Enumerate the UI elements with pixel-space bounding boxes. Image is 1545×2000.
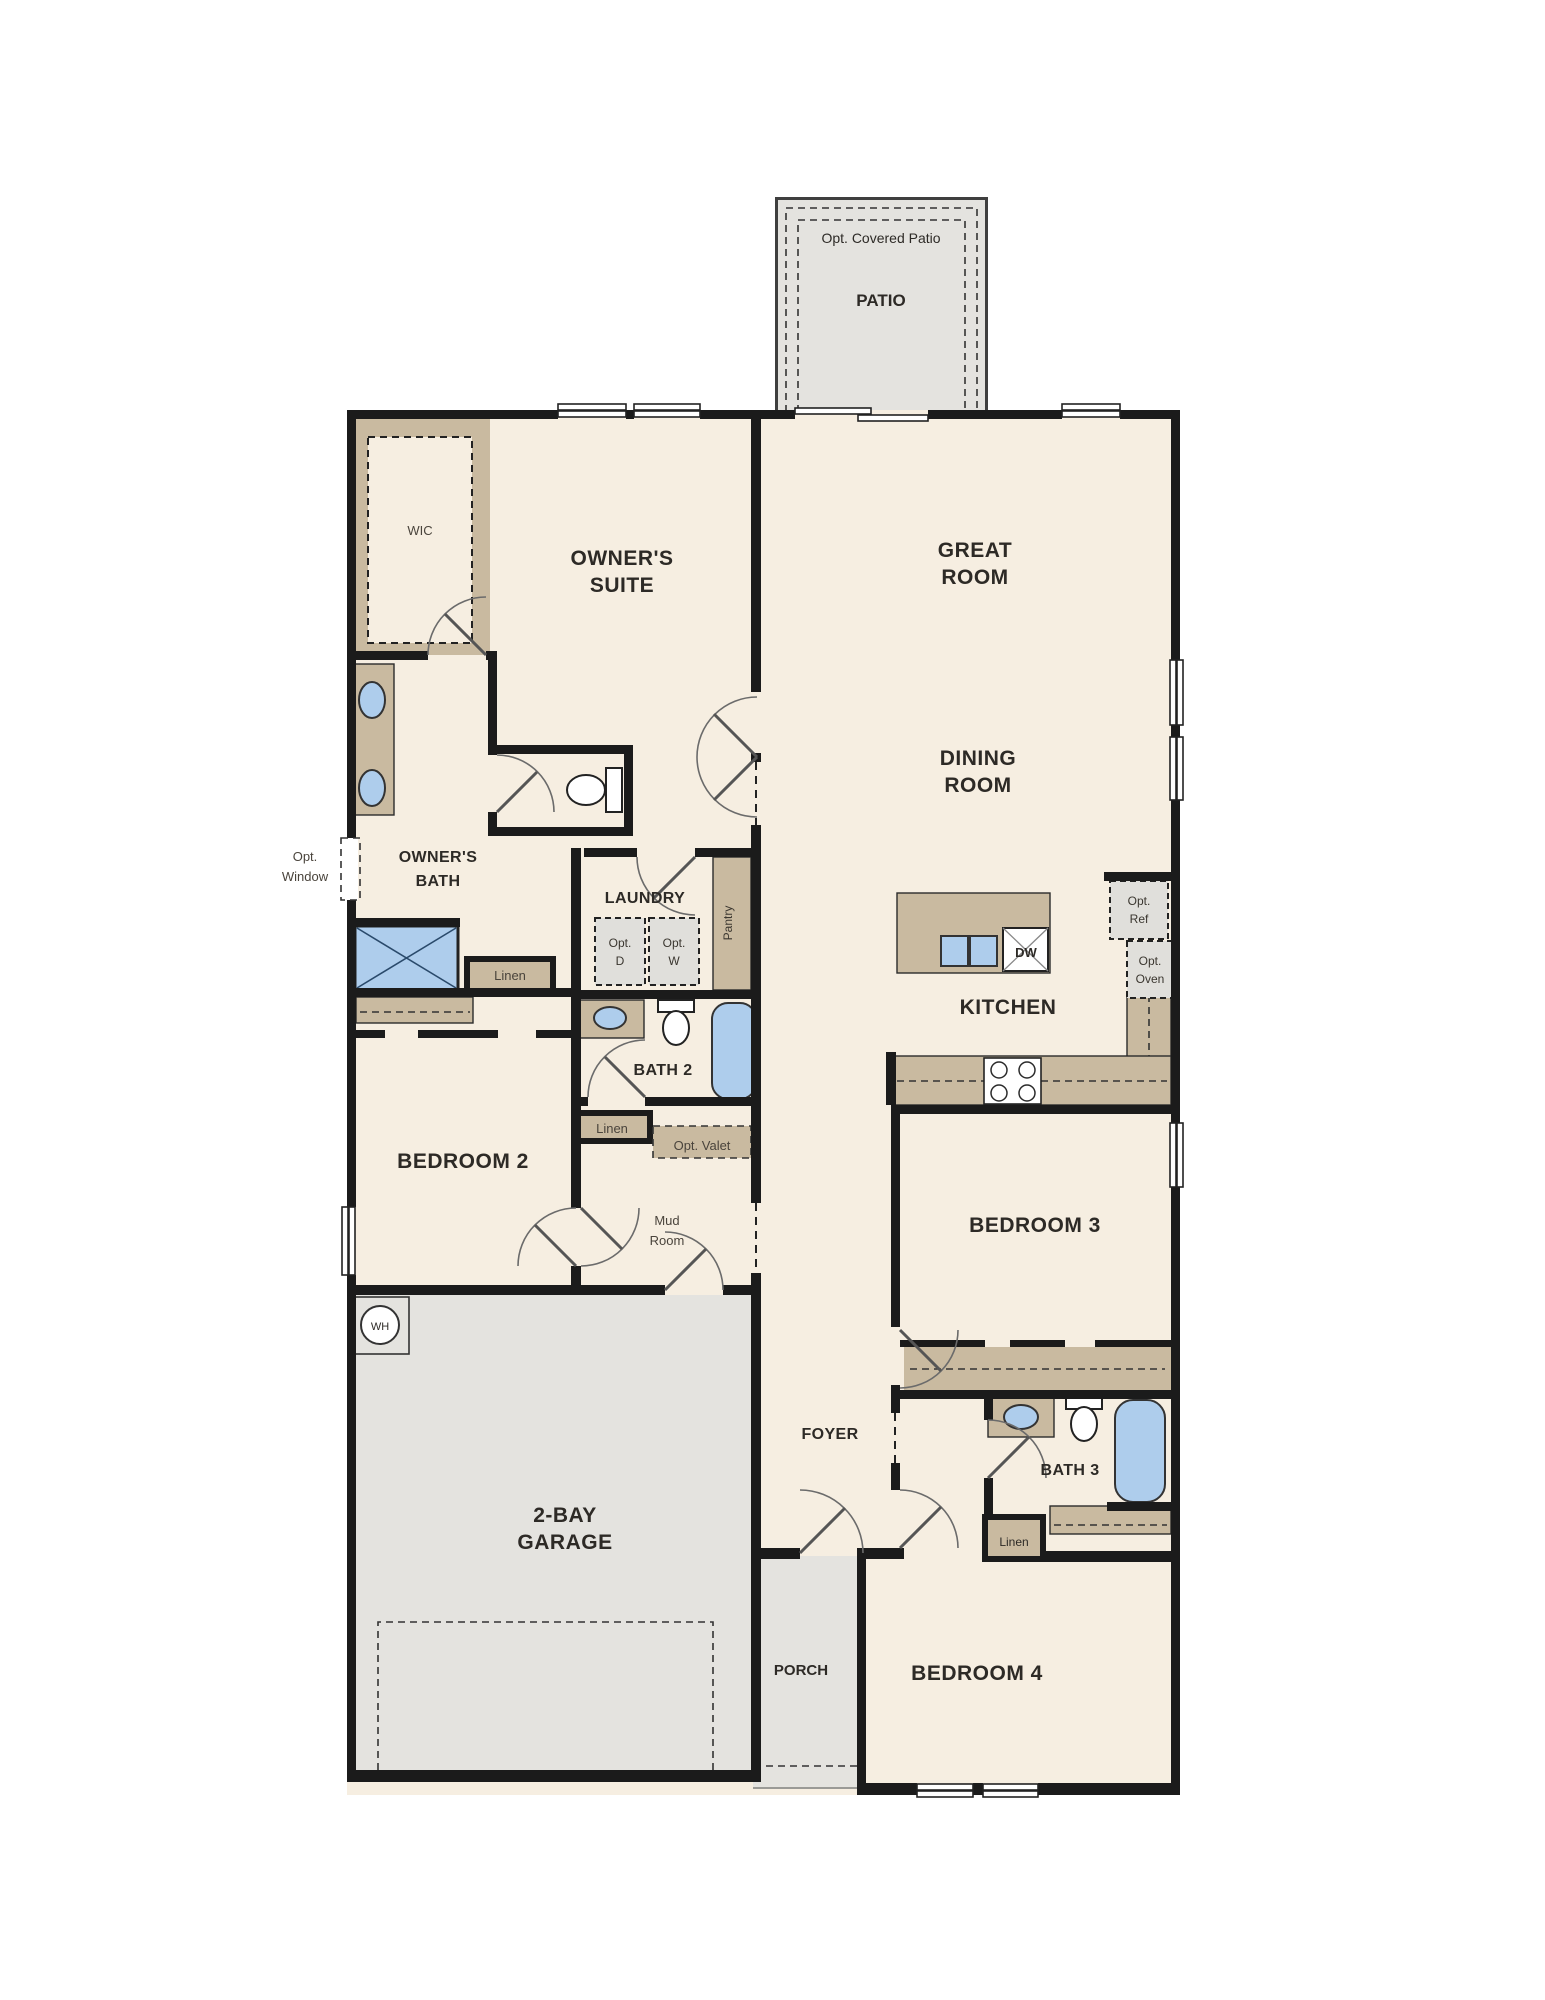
foyer-label: FOYER xyxy=(801,1426,858,1443)
owners-sink-2 xyxy=(359,770,385,806)
window xyxy=(917,1784,973,1790)
opt-window-label-1: Opt. xyxy=(293,849,318,864)
owners-suite-label-2: SUITE xyxy=(590,574,654,597)
opt-window-label-2: Window xyxy=(282,869,329,884)
window xyxy=(634,404,700,410)
opt-window-gap xyxy=(345,838,358,900)
floor-plan: Opt. Covered Patio PATIO xyxy=(0,0,1545,2000)
bath2-toilet-bowl xyxy=(663,1011,689,1045)
window xyxy=(983,1784,1038,1790)
opt-valet-label: Opt. Valet xyxy=(674,1138,731,1153)
owners-bath-label-1: OWNER'S xyxy=(399,849,478,866)
window xyxy=(1170,660,1176,725)
bath3-toilet-bowl xyxy=(1071,1407,1097,1441)
wic-label: WIC xyxy=(407,523,432,538)
window xyxy=(558,404,626,410)
window xyxy=(1170,737,1176,800)
pantry-label: Pantry xyxy=(721,906,735,941)
opt-oven-label-1: Opt. xyxy=(1139,954,1162,968)
great-room-label-2: ROOM xyxy=(941,566,1008,589)
owners-toilet-bowl xyxy=(567,775,605,805)
kitchen-label: KITCHEN xyxy=(960,996,1057,1019)
opt-ref-label-1: Opt. xyxy=(1128,894,1151,908)
bath2-label: BATH 2 xyxy=(634,1062,693,1079)
opt-washer-box xyxy=(649,918,699,985)
opt-w-label-2: W xyxy=(668,954,680,968)
mud-room-label-2: Room xyxy=(650,1233,685,1248)
window xyxy=(342,1207,348,1275)
mud-room-label-1: Mud xyxy=(654,1213,679,1228)
garage-label-2: GARAGE xyxy=(517,1531,612,1554)
patio-label: PATIO xyxy=(856,291,905,310)
laundry-label: LAUNDRY xyxy=(605,890,685,907)
owners-suite-label-1: OWNER'S xyxy=(571,547,674,570)
sliding-door xyxy=(795,408,871,414)
window xyxy=(1170,1123,1176,1187)
dining-room-label-1: DINING xyxy=(940,747,1017,770)
dining-room-label-2: ROOM xyxy=(944,774,1011,797)
opt-w-label-1: Opt. xyxy=(663,936,686,950)
kitchen-sink-right xyxy=(970,936,997,966)
owners-bath-label-2: BATH xyxy=(416,873,461,890)
dw-label: DW xyxy=(1015,945,1037,960)
bedroom3-label: BEDROOM 3 xyxy=(969,1214,1101,1237)
opt-ref-box xyxy=(1110,881,1168,939)
bath3-sink xyxy=(1004,1405,1038,1429)
opt-d-label-1: Opt. xyxy=(609,936,632,950)
opt-oven-label-2: Oven xyxy=(1136,972,1165,986)
opt-d-label-2: D xyxy=(616,954,625,968)
bedroom4-label: BEDROOM 4 xyxy=(911,1662,1043,1685)
hall-linen-label: Linen xyxy=(596,1121,628,1136)
garage-label-1: 2-BAY xyxy=(533,1504,597,1527)
bedroom2-label: BEDROOM 2 xyxy=(397,1150,529,1173)
opt-covered-patio-label: Opt. Covered Patio xyxy=(821,230,940,246)
owners-linen-label: Linen xyxy=(494,968,526,983)
owners-toilet-tank xyxy=(606,768,622,812)
floor-plan-page: Opt. Covered Patio PATIO xyxy=(0,0,1545,2000)
bath3-label: BATH 3 xyxy=(1041,1462,1100,1479)
window xyxy=(1062,404,1120,410)
wh-label: WH xyxy=(371,1321,389,1333)
opt-dryer-box xyxy=(595,918,645,985)
porch-label: PORCH xyxy=(774,1662,828,1679)
owners-sink-1 xyxy=(359,682,385,718)
patio-area: Opt. Covered Patio PATIO xyxy=(775,197,988,412)
bedroom2-closet xyxy=(356,997,473,1023)
opt-ref-label-2: Ref xyxy=(1130,912,1149,926)
bath3-linen-label: Linen xyxy=(999,1535,1028,1549)
bath3-tub xyxy=(1115,1400,1165,1502)
kitchen-sink-left xyxy=(941,936,968,966)
wic-closet xyxy=(368,437,472,643)
opt-oven-box xyxy=(1127,941,1173,998)
great-room-label-1: GREAT xyxy=(938,539,1012,562)
bath2-tub xyxy=(712,1003,756,1099)
bath2-sink xyxy=(594,1007,626,1029)
